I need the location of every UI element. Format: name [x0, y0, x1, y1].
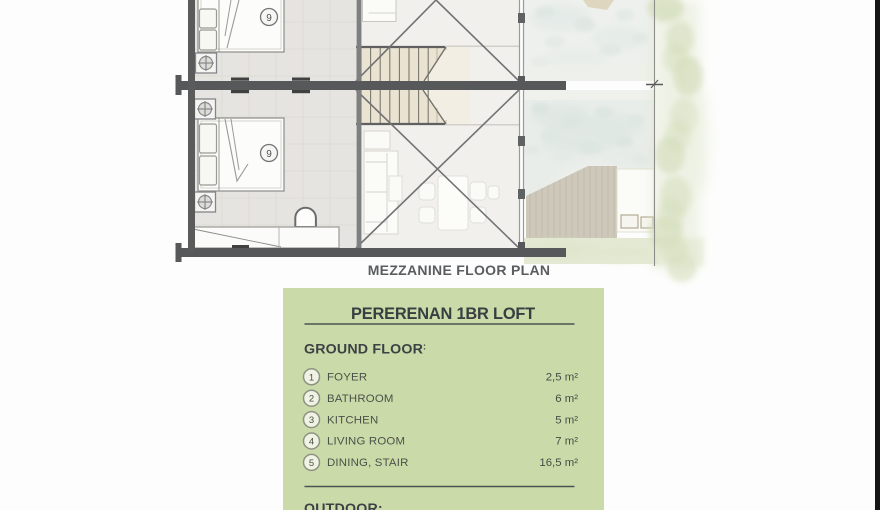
- svg-text:4: 4: [309, 437, 314, 448]
- svg-text:3: 3: [309, 415, 314, 426]
- svg-text:1: 1: [309, 372, 314, 383]
- svg-text:FOYER: FOYER: [327, 372, 367, 384]
- svg-text:5 m²: 5 m²: [555, 414, 578, 426]
- svg-text:GROUND FLOOR:: GROUND FLOOR:: [304, 342, 426, 358]
- svg-text:7 m²: 7 m²: [555, 436, 578, 448]
- svg-text:MEZZANINE FLOOR PLAN: MEZZANINE FLOOR PLAN: [368, 262, 551, 278]
- svg-text:16,5 m²: 16,5 m²: [539, 457, 578, 469]
- svg-text:KITCHEN: KITCHEN: [327, 414, 378, 426]
- svg-text:5: 5: [309, 458, 314, 469]
- svg-text:9: 9: [266, 149, 272, 160]
- svg-text:2,5 m²: 2,5 m²: [546, 372, 578, 384]
- svg-text:6 m²: 6 m²: [555, 393, 578, 405]
- svg-text:DINING, STAIR: DINING, STAIR: [327, 457, 409, 469]
- svg-text:LIVING ROOM: LIVING ROOM: [327, 436, 405, 448]
- svg-text:2: 2: [309, 394, 314, 405]
- svg-text:PERERENAN 1BR LOFT: PERERENAN 1BR LOFT: [351, 305, 535, 323]
- svg-text:OUTDOOR:: OUTDOOR:: [304, 501, 383, 510]
- svg-text:BATHROOM: BATHROOM: [327, 393, 394, 405]
- svg-text:9: 9: [266, 13, 272, 24]
